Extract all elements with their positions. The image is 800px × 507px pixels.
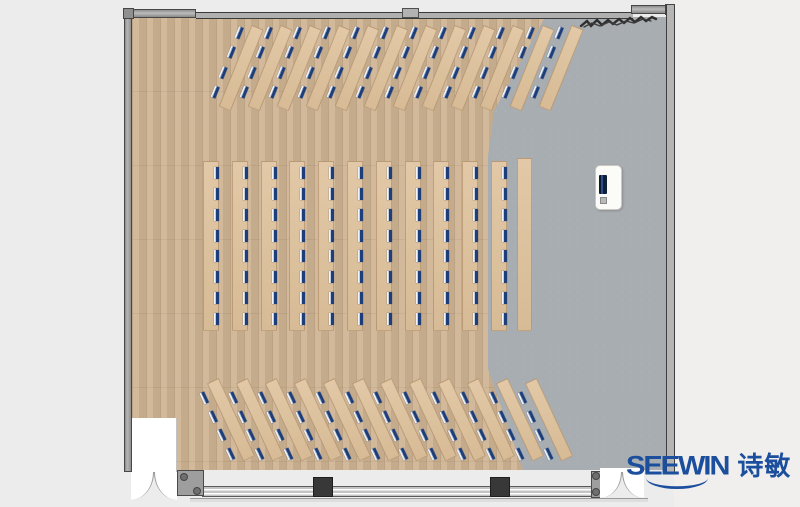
seat-marker: [341, 448, 351, 461]
seat-marker: [217, 429, 227, 442]
seat-marker: [387, 209, 392, 221]
seat-marker: [214, 209, 219, 221]
seat-marker: [300, 313, 305, 325]
seat-marker: [358, 209, 363, 221]
seat-marker: [214, 292, 219, 304]
seat-marker: [502, 209, 507, 221]
desk-top: [405, 161, 421, 331]
seat-marker: [248, 66, 257, 79]
seat-marker: [335, 66, 344, 79]
desk: [261, 161, 285, 331]
seat-marker: [473, 292, 478, 304]
seat-marker: [306, 66, 315, 79]
desk-top: [491, 161, 507, 331]
seat-marker: [502, 292, 507, 304]
seat-marker: [235, 26, 244, 39]
seat-marker: [199, 391, 209, 404]
seat-marker: [467, 26, 476, 39]
wall-joint-dot: [592, 488, 600, 496]
seat-marker: [387, 250, 392, 262]
seat-marker: [211, 86, 220, 99]
seat-marker: [416, 271, 421, 283]
entrance-vestibule: [132, 418, 177, 472]
seat-marker: [364, 66, 373, 79]
seat-marker: [272, 230, 277, 242]
seat-marker: [300, 292, 305, 304]
seat-marker: [444, 167, 449, 179]
seat-marker: [393, 66, 402, 79]
desk-top: [318, 161, 334, 331]
desk-top: [347, 161, 363, 331]
desk: [462, 161, 486, 331]
seat-marker: [372, 46, 381, 59]
podium-slot: [600, 197, 607, 204]
seat-marker: [277, 66, 286, 79]
seat-marker: [327, 86, 336, 99]
seat-marker: [480, 66, 489, 79]
seat-marker: [416, 167, 421, 179]
seat-marker: [214, 250, 219, 262]
seat-marker: [416, 188, 421, 200]
seat-marker: [473, 271, 478, 283]
seat-marker: [272, 313, 277, 325]
seewin-logo: SEEWIN 诗敏: [626, 452, 791, 481]
seat-marker: [399, 448, 409, 461]
seat-marker: [226, 448, 236, 461]
desk-top: [462, 161, 478, 331]
seat-marker: [214, 188, 219, 200]
seat-marker: [438, 26, 447, 39]
seat-marker: [416, 209, 421, 221]
seat-marker: [214, 230, 219, 242]
seat-marker: [358, 167, 363, 179]
seat-marker: [502, 250, 507, 262]
seat-marker: [444, 188, 449, 200]
seat-marker: [444, 209, 449, 221]
seat-marker: [517, 46, 526, 59]
seat-marker: [502, 167, 507, 179]
seat-marker: [444, 271, 449, 283]
seat-marker: [329, 313, 334, 325]
seat-marker: [385, 86, 394, 99]
seat-marker: [457, 448, 467, 461]
podium-screen-icon: [599, 175, 607, 194]
wall-left: [124, 9, 132, 472]
seat-marker: [300, 188, 305, 200]
seat-marker: [240, 86, 249, 99]
seat-marker: [401, 46, 410, 59]
seat-marker: [473, 209, 478, 221]
seat-marker: [255, 448, 265, 461]
seat-marker: [444, 313, 449, 325]
wall-joint-dot: [193, 487, 201, 495]
seat-marker: [502, 271, 507, 283]
desk-top: [203, 161, 219, 331]
seat-marker: [387, 188, 392, 200]
seat-marker: [243, 250, 248, 262]
seat-marker: [329, 209, 334, 221]
desk: [318, 161, 342, 331]
seat-marker: [329, 250, 334, 262]
wall-corner-top-left: [123, 8, 134, 19]
seat-marker: [472, 86, 481, 99]
seat-marker: [283, 448, 293, 461]
seat-marker: [243, 209, 248, 221]
pillar: [313, 477, 333, 497]
seat-marker: [451, 66, 460, 79]
seat-marker: [208, 410, 218, 423]
desk: [203, 161, 227, 331]
seat-marker: [502, 230, 507, 242]
seat-marker: [300, 250, 305, 262]
seat-marker: [358, 188, 363, 200]
seat-marker: [502, 313, 507, 325]
wall-joint-dot: [180, 473, 188, 481]
podium: [595, 165, 622, 210]
seat-marker: [387, 230, 392, 242]
seat-marker: [293, 26, 302, 39]
seat-marker: [351, 26, 360, 39]
seat-marker: [256, 46, 265, 59]
seat-marker: [356, 86, 365, 99]
seat-marker: [322, 26, 331, 39]
seat-marker: [488, 46, 497, 59]
desk-top: [376, 161, 392, 331]
seat-marker: [416, 313, 421, 325]
seat-marker: [486, 448, 496, 461]
desk: [376, 161, 400, 331]
seat-marker: [243, 271, 248, 283]
desk: [405, 161, 429, 331]
wall-joint-block: [402, 8, 419, 18]
seat-marker: [314, 46, 323, 59]
seat-marker: [329, 230, 334, 242]
seat-marker: [272, 209, 277, 221]
seat-marker: [358, 250, 363, 262]
desk: [347, 161, 371, 331]
seat-marker: [272, 292, 277, 304]
wall-joint-dot: [592, 472, 600, 480]
seat-marker: [416, 250, 421, 262]
scribble-mark: [578, 13, 660, 31]
desk-top: [289, 161, 305, 331]
seat-marker: [227, 46, 236, 59]
seat-marker: [443, 86, 452, 99]
seat-marker: [358, 292, 363, 304]
seat-marker: [312, 448, 322, 461]
seat-marker: [264, 26, 273, 39]
seat-marker: [300, 230, 305, 242]
desk-top: [261, 161, 277, 331]
seat-marker: [525, 26, 534, 39]
seat-marker: [473, 250, 478, 262]
logo-brand: SEEWIN: [626, 451, 728, 480]
seat-marker: [269, 86, 278, 99]
seat-marker: [544, 448, 554, 461]
seat-marker: [358, 271, 363, 283]
seat-marker: [444, 250, 449, 262]
seat-marker: [285, 46, 294, 59]
seat-marker: [243, 167, 248, 179]
seat-marker: [300, 209, 305, 221]
desk: [433, 161, 457, 331]
seat-marker: [298, 86, 307, 99]
logo-text-cn: 诗敏: [737, 453, 791, 479]
seat-marker: [409, 26, 418, 39]
seat-marker: [509, 66, 518, 79]
seat-marker: [496, 26, 505, 39]
seat-marker: [473, 313, 478, 325]
seat-marker: [416, 292, 421, 304]
seat-marker: [501, 86, 510, 99]
seat-marker: [387, 313, 392, 325]
logo-text-en: SEEWIN: [626, 453, 728, 480]
seat-marker: [473, 230, 478, 242]
seat-marker: [329, 271, 334, 283]
seat-marker: [272, 188, 277, 200]
seat-marker: [473, 188, 478, 200]
seat-marker: [272, 167, 277, 179]
seat-marker: [329, 188, 334, 200]
seat-marker: [272, 250, 277, 262]
seat-marker: [444, 292, 449, 304]
seat-marker: [243, 188, 248, 200]
seat-marker: [502, 188, 507, 200]
pillar: [490, 477, 510, 497]
seat-marker: [329, 292, 334, 304]
desk: [232, 161, 256, 331]
seat-marker: [370, 448, 380, 461]
seat-marker: [214, 271, 219, 283]
seat-marker: [272, 271, 277, 283]
desk: [289, 161, 313, 331]
seat-marker: [473, 167, 478, 179]
desk-top: [517, 158, 532, 331]
desk-layer: [0, 0, 800, 507]
seat-marker: [380, 26, 389, 39]
seat-marker: [243, 230, 248, 242]
seat-marker: [430, 46, 439, 59]
seat-marker: [422, 66, 431, 79]
desk-top: [232, 161, 248, 331]
seat-marker: [243, 313, 248, 325]
seat-marker: [387, 271, 392, 283]
desk: [517, 158, 541, 331]
wall-right: [666, 5, 675, 473]
seat-marker: [444, 230, 449, 242]
seat-marker: [459, 46, 468, 59]
seat-marker: [214, 167, 219, 179]
seat-marker: [243, 292, 248, 304]
seat-marker: [554, 26, 563, 39]
seat-marker: [414, 86, 423, 99]
seat-marker: [358, 230, 363, 242]
window-sill-line: [190, 498, 648, 502]
desk-top: [433, 161, 449, 331]
seat-marker: [515, 448, 525, 461]
seat-marker: [343, 46, 352, 59]
window-wall-band: [202, 486, 592, 497]
seat-marker: [300, 167, 305, 179]
desk: [491, 161, 515, 331]
seat-marker: [219, 66, 228, 79]
seat-marker: [387, 167, 392, 179]
seat-marker: [329, 167, 334, 179]
seat-marker: [214, 313, 219, 325]
seat-marker: [300, 271, 305, 283]
seat-marker: [428, 448, 438, 461]
seat-marker: [416, 230, 421, 242]
seat-marker: [358, 313, 363, 325]
seat-marker: [387, 292, 392, 304]
